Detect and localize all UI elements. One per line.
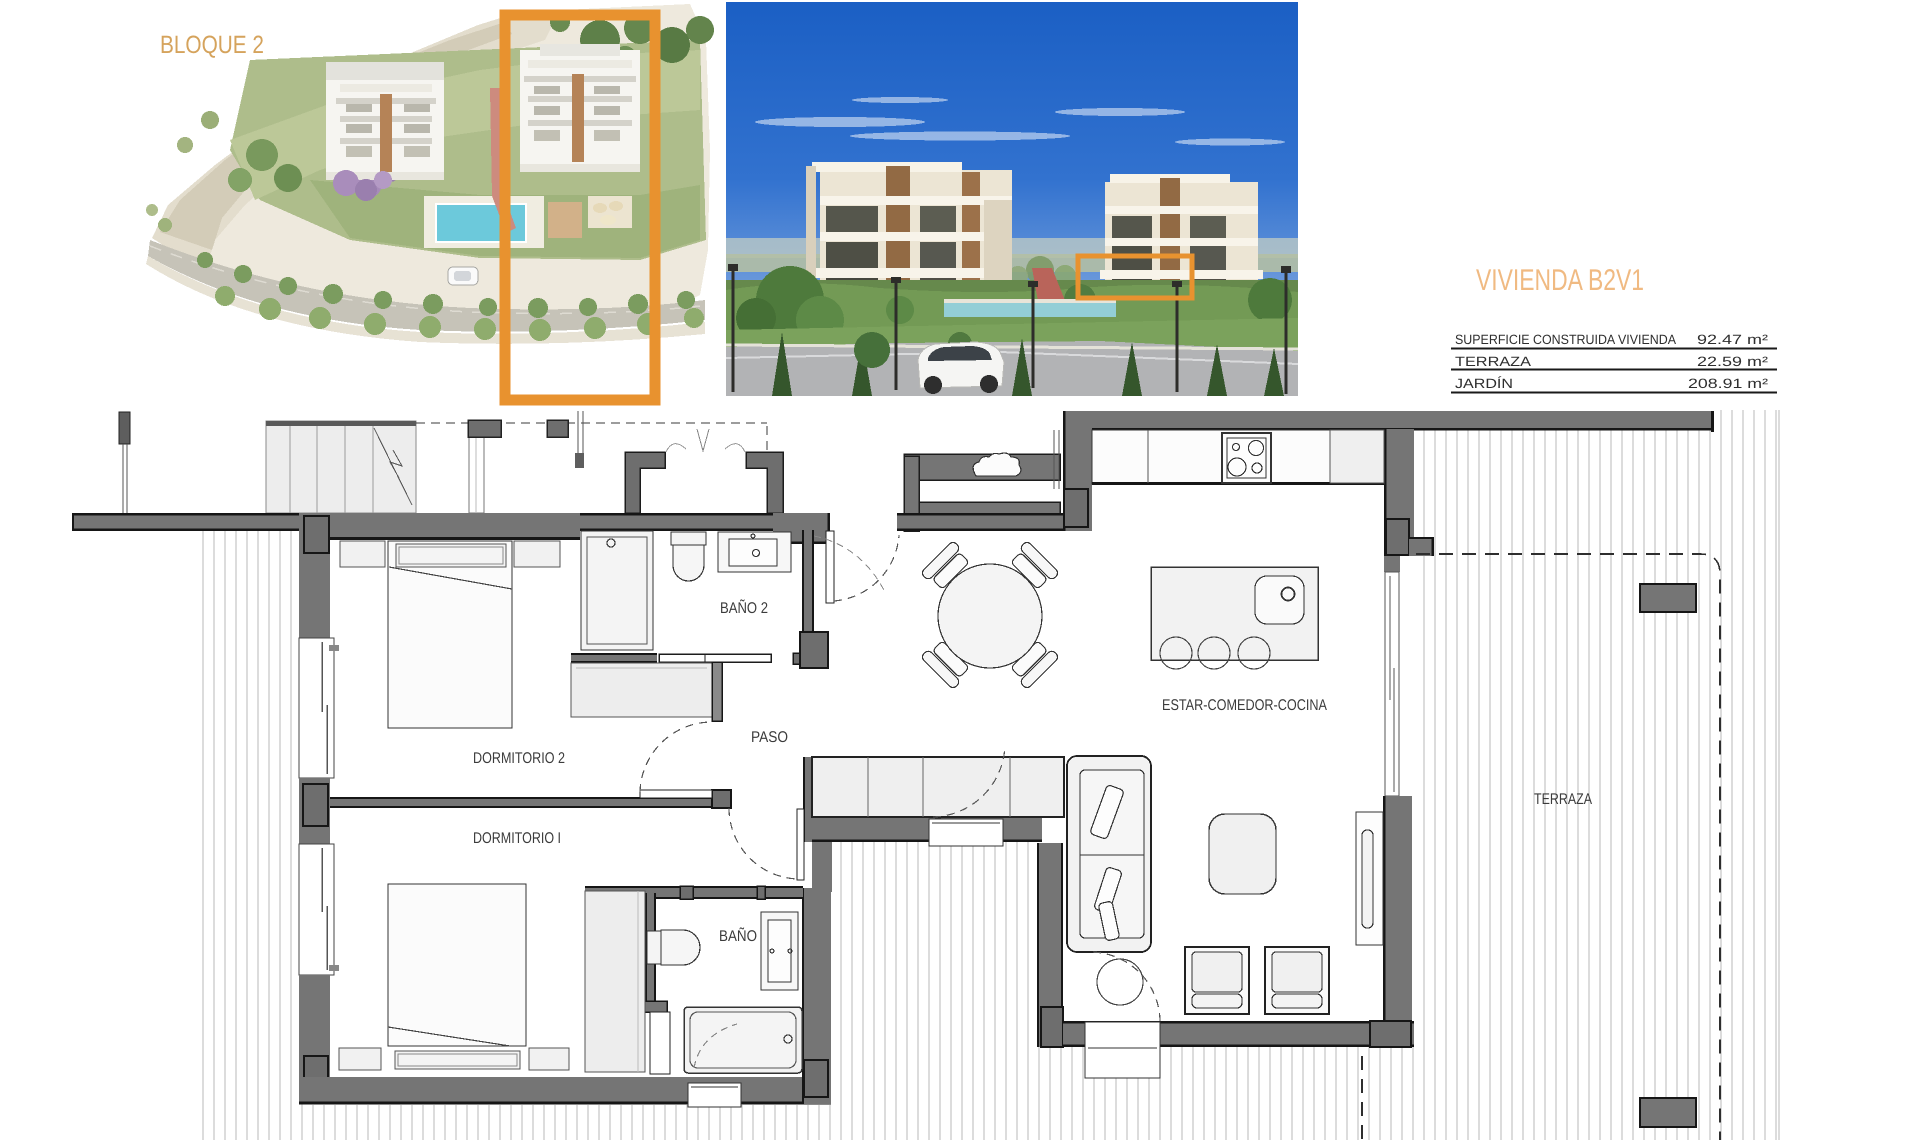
svg-text:JARDÍN: JARDÍN bbox=[1455, 376, 1513, 391]
svg-text:208.91 m²: 208.91 m² bbox=[1688, 376, 1769, 391]
svg-text:VIVIENDA B2V1: VIVIENDA B2V1 bbox=[1476, 264, 1644, 297]
svg-text:BAÑO: BAÑO bbox=[719, 927, 757, 945]
svg-text:ESTAR-COMEDOR-COCINA: ESTAR-COMEDOR-COCINA bbox=[1162, 697, 1328, 714]
svg-text:TERRAZA: TERRAZA bbox=[1534, 791, 1593, 808]
svg-text:92.47 m²: 92.47 m² bbox=[1697, 332, 1769, 347]
svg-text:22.59 m²: 22.59 m² bbox=[1697, 354, 1769, 369]
svg-text:PASO: PASO bbox=[751, 729, 788, 746]
svg-text:DORMITORIO I: DORMITORIO I bbox=[473, 830, 561, 847]
svg-text:TERRAZA: TERRAZA bbox=[1455, 354, 1531, 369]
svg-text:SUPERFICIE CONSTRUIDA VIVIENDA: SUPERFICIE CONSTRUIDA VIVIENDA bbox=[1455, 332, 1676, 347]
svg-text:BLOQUE 2: BLOQUE 2 bbox=[160, 31, 264, 59]
svg-text:BAÑO 2: BAÑO 2 bbox=[720, 599, 768, 617]
svg-text:DORMITORIO 2: DORMITORIO 2 bbox=[473, 750, 565, 767]
